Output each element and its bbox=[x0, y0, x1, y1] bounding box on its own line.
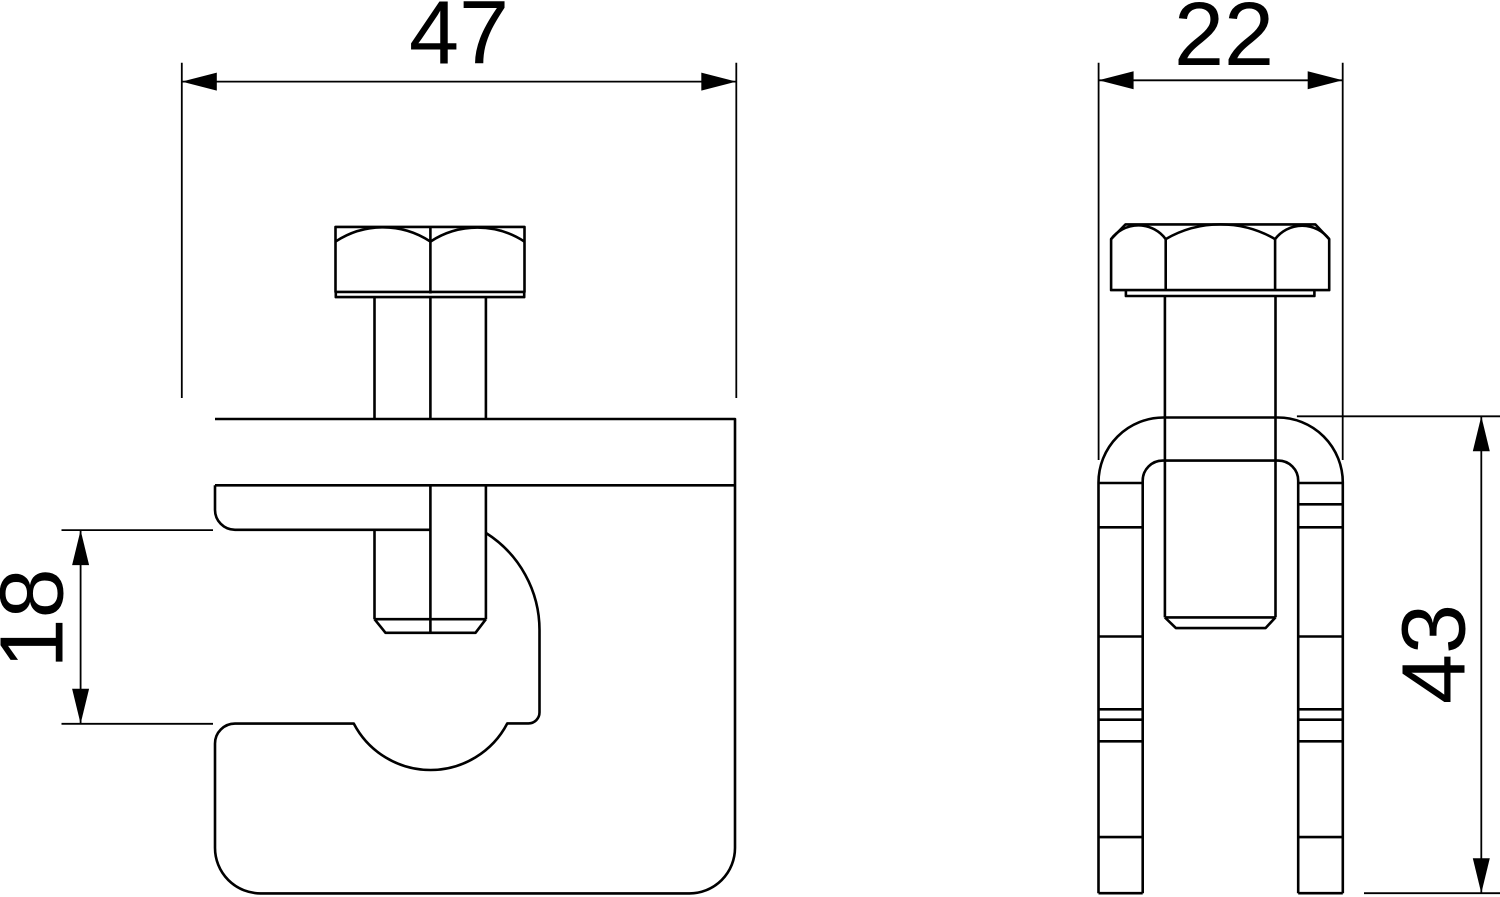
svg-text:22: 22 bbox=[1174, 0, 1274, 85]
svg-text:43: 43 bbox=[1384, 604, 1484, 704]
svg-text:18: 18 bbox=[0, 568, 82, 668]
svg-text:47: 47 bbox=[409, 0, 509, 84]
